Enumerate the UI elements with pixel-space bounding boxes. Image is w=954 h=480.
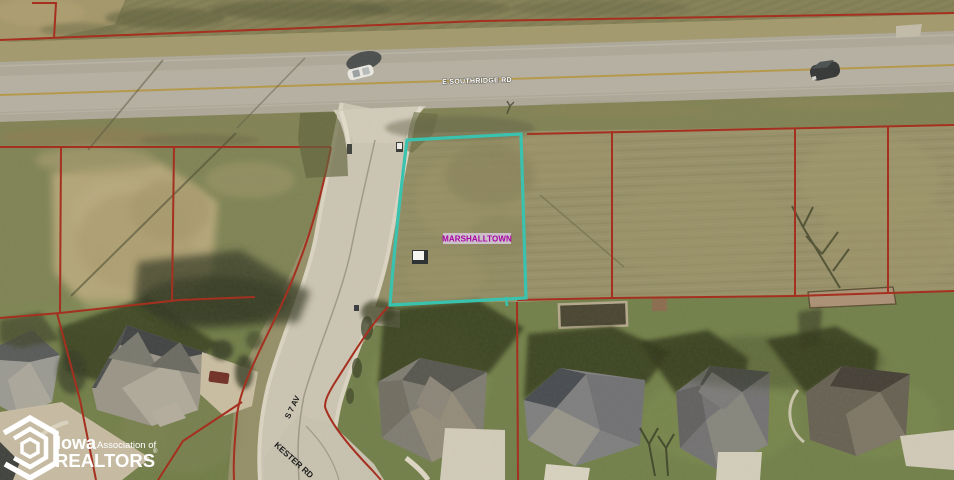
svg-text:REALTORS: REALTORS <box>55 450 155 471</box>
svg-text:MARSHALLTOWN: MARSHALLTOWN <box>442 235 512 244</box>
svg-text:®: ® <box>153 448 158 455</box>
